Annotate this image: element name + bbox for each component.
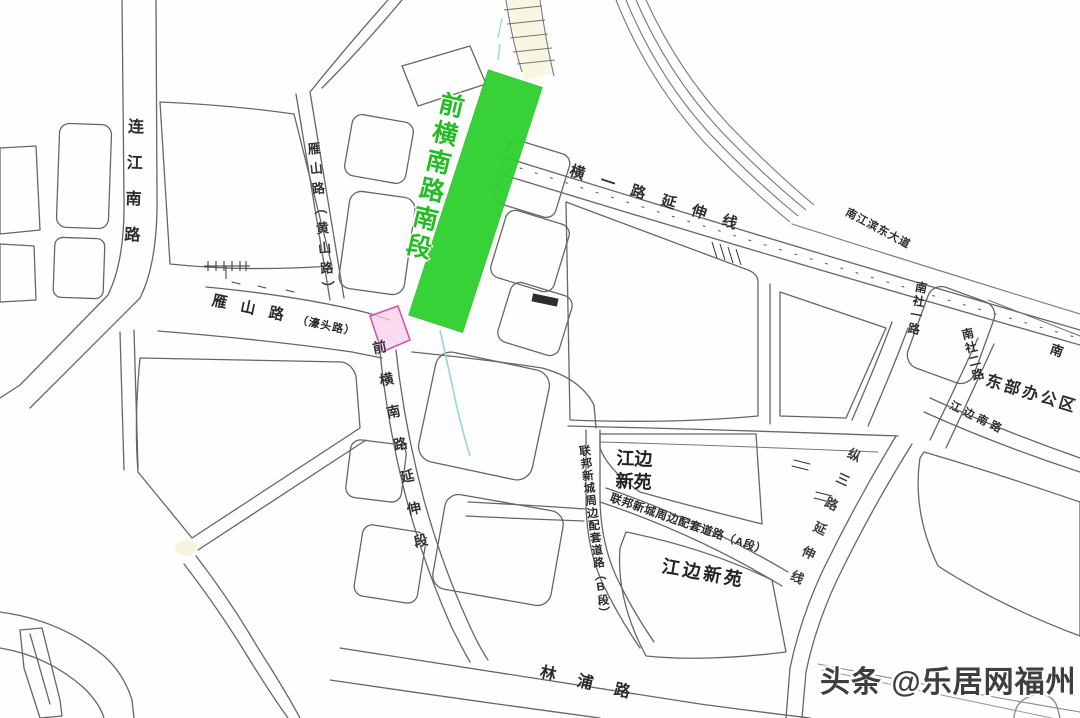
- road-plan-map: 连江南路 雁山路（黄山路） 雁山路（濠头路） 前横南路南段 横一路延伸线 南江滨…: [0, 0, 1080, 718]
- road-outlines: [0, 0, 1080, 718]
- watermark-leju-fuzhou: 头条 @乐居网福州: [820, 666, 1077, 701]
- tiny-illegible-label: [531, 293, 558, 306]
- cyan-alignment-line: [440, 330, 470, 456]
- road-network: [0, 0, 1080, 718]
- label-jiangbian-xinyuan-block: 江边新苑: [615, 447, 663, 494]
- bridge-symbol: [204, 261, 250, 279]
